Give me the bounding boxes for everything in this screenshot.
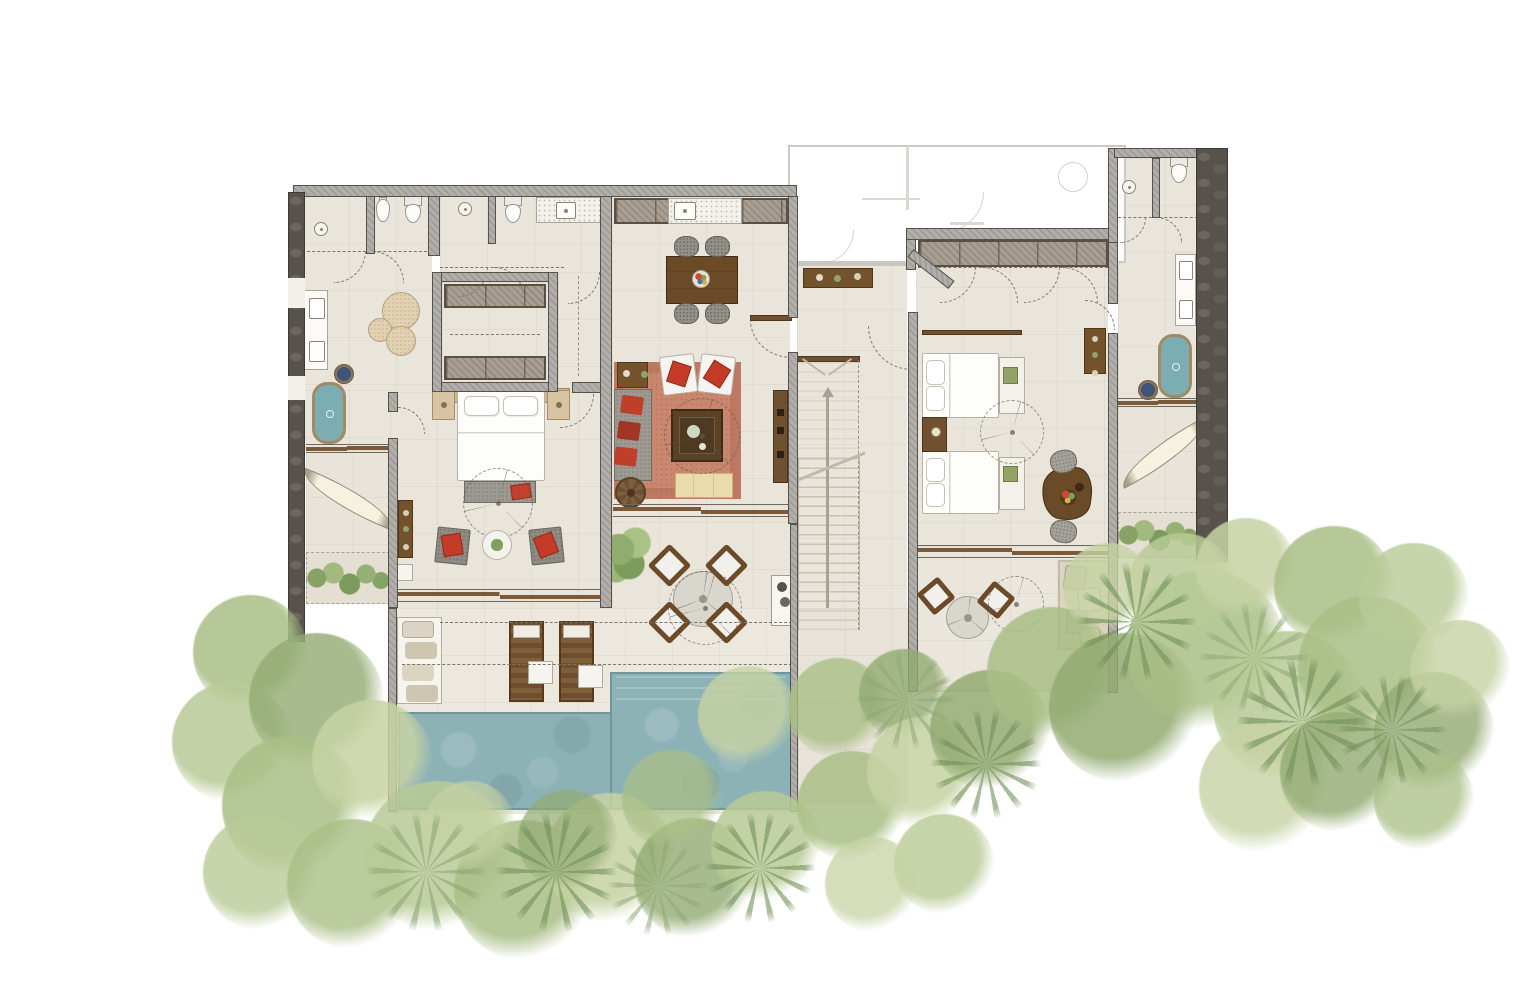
bath-stool (334, 364, 354, 384)
palm (608, 836, 708, 936)
adjacent-unit-wall (906, 146, 909, 210)
armchair (659, 353, 698, 396)
right-bathtub (1158, 334, 1192, 398)
deck-guide (440, 622, 792, 623)
kitchen-sink (674, 202, 696, 220)
stairs-upper-flight (798, 362, 860, 458)
armchair (697, 353, 736, 396)
ceiling-fan (664, 398, 740, 474)
hall-faint-wall (795, 261, 909, 266)
closet-wall (432, 272, 558, 282)
kitchen-cabinet (614, 198, 670, 224)
stone-wall-west (288, 192, 305, 642)
living-hall-door-leaf (750, 315, 792, 321)
master-double-vanity (304, 290, 328, 370)
wall (788, 352, 798, 524)
kitchen-cabinet (740, 198, 788, 224)
wall (428, 196, 440, 256)
tv-console (773, 390, 788, 483)
nightstand (432, 390, 455, 420)
left-planter (306, 552, 390, 604)
wall (908, 312, 918, 692)
lounger-side-table (578, 665, 603, 688)
palm (856, 650, 956, 750)
stair-handrail (858, 360, 859, 630)
cream-bench (675, 473, 733, 498)
closet-wall (432, 382, 558, 392)
twin-bed (922, 451, 999, 514)
twin-wall-shelf (922, 330, 1022, 335)
ceiling-fan (463, 468, 533, 538)
wall (788, 196, 798, 318)
adjacent-unit-fixture (1058, 162, 1088, 192)
tree (825, 837, 920, 932)
wall (906, 228, 1118, 240)
twin-bed-bench (999, 457, 1025, 510)
hall-console (803, 268, 873, 288)
closet-wall (548, 272, 558, 392)
dining-chair (705, 236, 730, 257)
stone-wall-window (288, 278, 305, 308)
villa-floor-plan (0, 0, 1536, 998)
tree (698, 666, 798, 766)
bath-stool (1138, 380, 1158, 400)
adjacent-unit-bench (950, 222, 984, 225)
right-shower-head (1122, 180, 1136, 194)
twin-nightstand (922, 417, 947, 452)
wall (488, 196, 496, 244)
palm (705, 813, 815, 923)
guest-sink (556, 202, 576, 219)
round-side-table (482, 530, 512, 560)
wall (1108, 242, 1118, 304)
wall (1152, 158, 1160, 218)
stone-wall-east (1196, 148, 1228, 562)
stair-direction-arrow (826, 390, 829, 608)
master-bathtub (312, 382, 346, 444)
garden-steps (800, 600, 858, 636)
pouf (386, 326, 416, 356)
deck-guide (402, 664, 792, 665)
closet-wall (432, 272, 442, 392)
palm (1199, 603, 1309, 713)
wall (1114, 148, 1200, 158)
ceiling-fan (980, 400, 1044, 464)
twin-closet-wardrobe (918, 240, 1108, 267)
twin-bath-door-arc (1085, 300, 1115, 330)
palm (1076, 562, 1196, 682)
sofa (614, 389, 652, 481)
pool-daybed (397, 617, 442, 704)
wall (388, 438, 398, 608)
adjacent-unit-wall (862, 198, 920, 200)
master-toilet (402, 196, 424, 224)
bedroom-console (398, 500, 413, 558)
closet-wardrobe-south (444, 356, 546, 380)
living-sliding-door (613, 504, 789, 517)
table-centerpiece (692, 270, 710, 288)
wall (1108, 148, 1118, 244)
sun-lounger (559, 621, 594, 702)
dining-chair (705, 303, 730, 324)
twin-tall-cabinet (1084, 328, 1106, 374)
ceiling-fan (668, 571, 742, 645)
tree (622, 750, 722, 850)
guest-toilet (502, 196, 524, 224)
palm (366, 812, 486, 932)
right-toilet (1168, 157, 1190, 184)
guest-shower-head (458, 202, 472, 216)
right-bath-sliding-door (1118, 398, 1198, 407)
palm (1337, 675, 1447, 785)
bath-court-sliding-door (306, 444, 388, 453)
sofa-side-table (617, 362, 648, 388)
dining-chair (674, 303, 699, 324)
wall (366, 196, 375, 254)
stone-wall-window (288, 376, 305, 400)
floor-lamp-table (396, 564, 413, 581)
master-shower-head (314, 222, 328, 236)
closet-centerline (450, 334, 540, 335)
right-double-vanity (1175, 254, 1196, 326)
garden-wall (790, 524, 798, 812)
twin-bed (922, 353, 999, 418)
master-sliding-door (396, 589, 603, 602)
dining-chair (674, 236, 699, 257)
palm (496, 812, 616, 932)
wall (388, 392, 398, 412)
master-bidet (374, 197, 392, 224)
lounge-chair (434, 526, 471, 565)
wall (600, 196, 612, 608)
lounge-chair (528, 526, 565, 565)
